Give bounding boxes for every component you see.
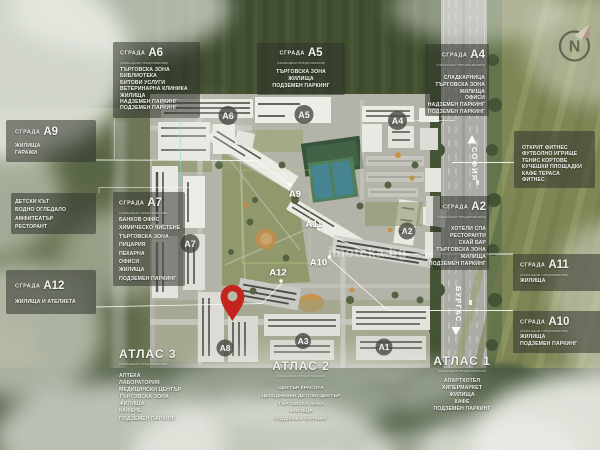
svg-text:A12: A12 — [269, 268, 286, 279]
svg-text:A6: A6 — [222, 111, 234, 121]
svg-text:A5: A5 — [298, 110, 310, 120]
svg-text:A11: A11 — [306, 219, 324, 230]
svg-text:N: N — [569, 39, 581, 56]
svg-text:A3: A3 — [298, 336, 309, 346]
svg-text:A10: A10 — [310, 258, 327, 269]
svg-text:БУРГАС: БУРГАС — [454, 286, 463, 323]
svg-text:A2: A2 — [402, 226, 413, 236]
svg-text:A4: A4 — [392, 116, 404, 126]
svg-text:imoteka.bg: imoteka.bg — [328, 244, 407, 260]
svg-text:A1: A1 — [379, 342, 390, 352]
svg-text:СОФИЯ: СОФИЯ — [470, 147, 479, 181]
svg-text:A7: A7 — [184, 239, 196, 249]
svg-text:A9: A9 — [289, 189, 301, 200]
